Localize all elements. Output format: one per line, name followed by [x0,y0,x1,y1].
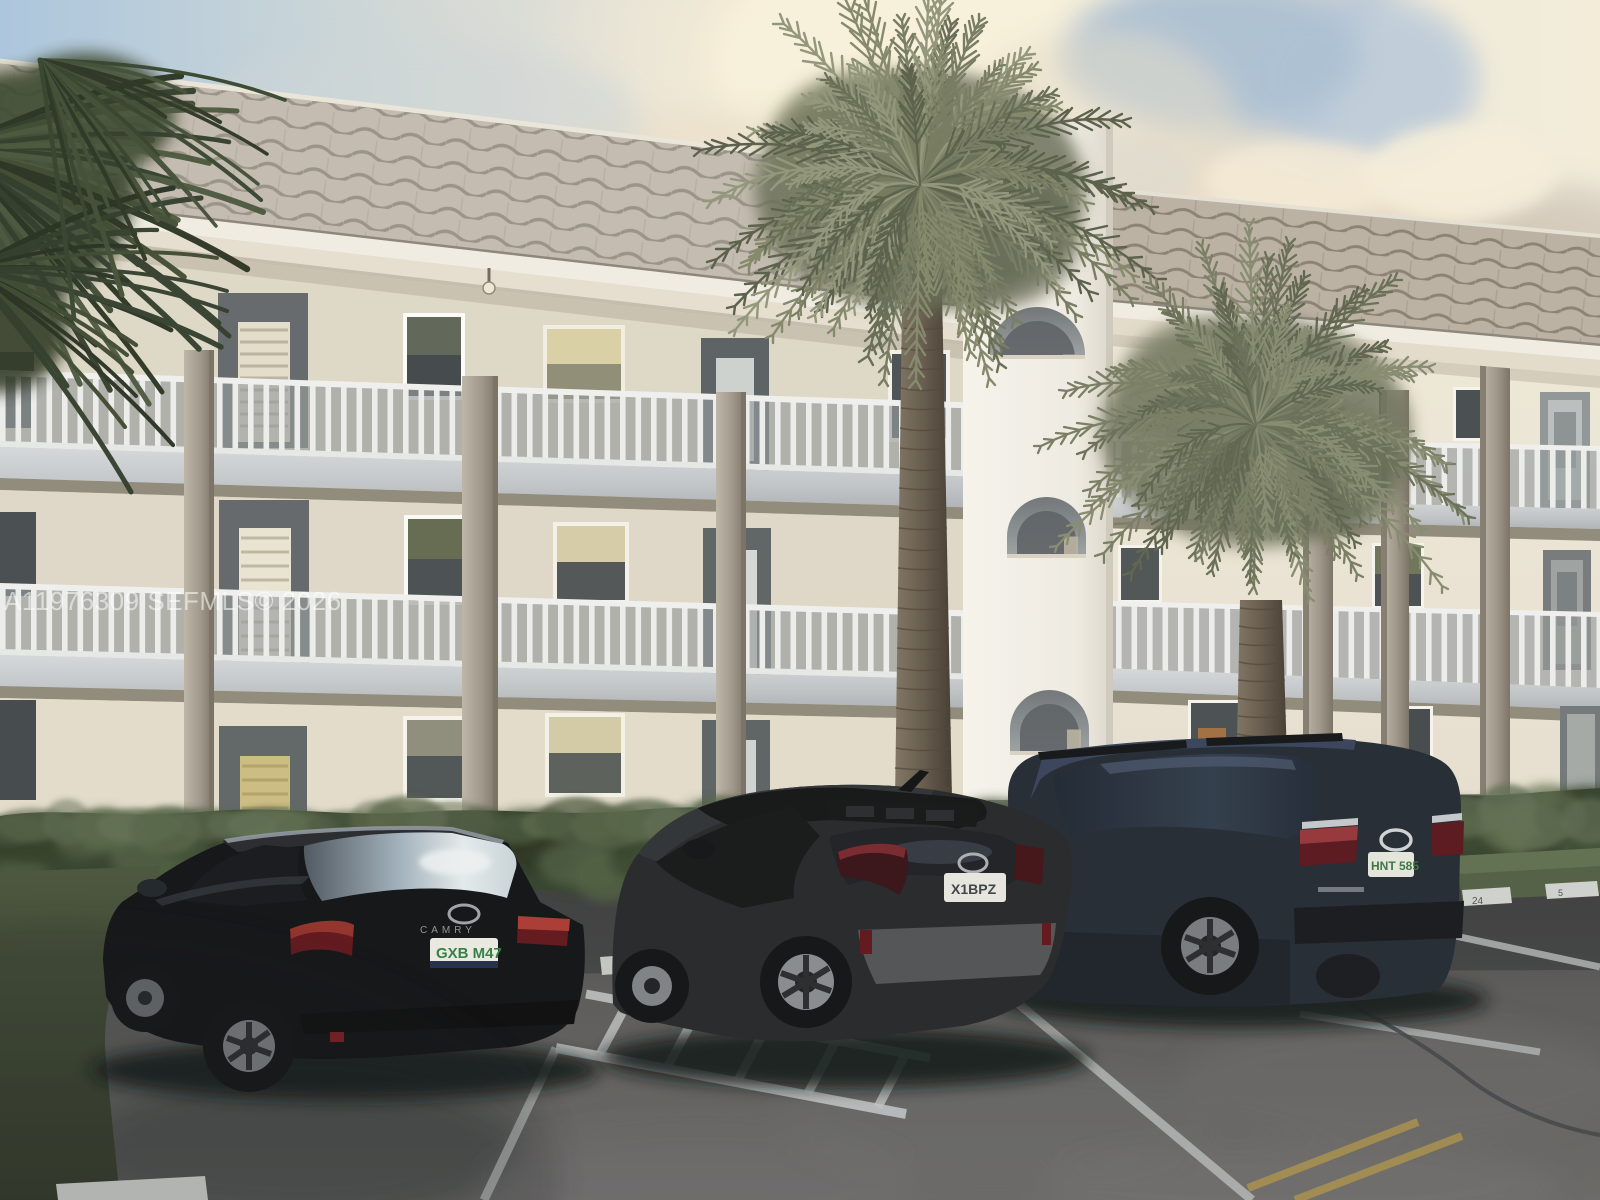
svg-text:A11976309 SEFMLS© 2026: A11976309 SEFMLS© 2026 [4,586,342,616]
